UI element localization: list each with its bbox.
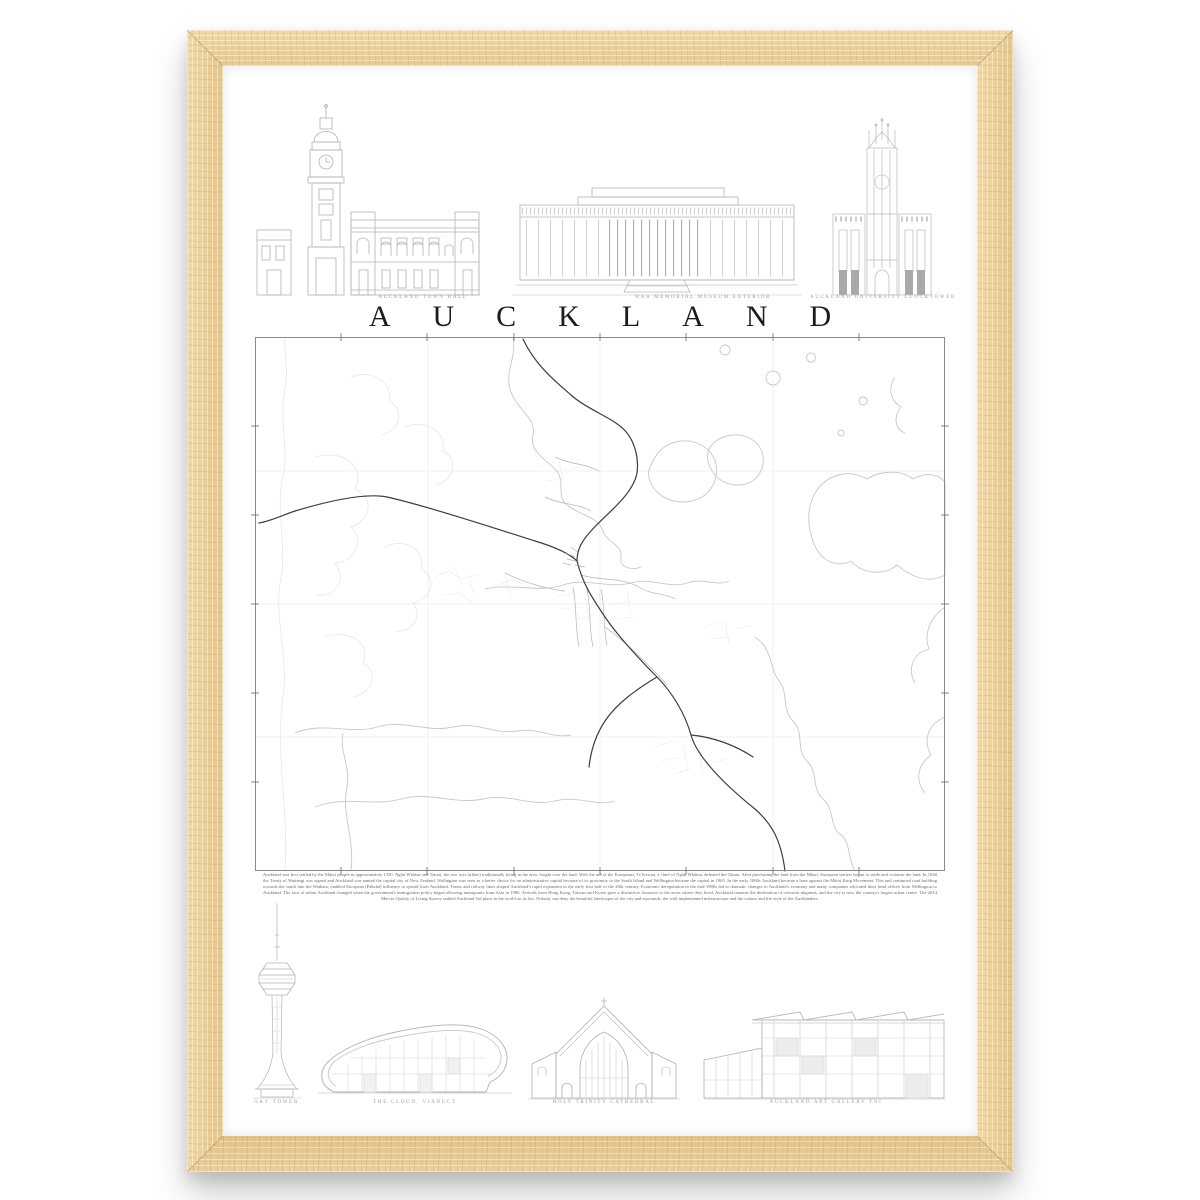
caption-holy-trinity-cathedral: HOLY TRINITY CATHEDRAL [528, 1100, 680, 1105]
auckland-town-hall-drawing [255, 102, 480, 296]
sky-tower-drawing [252, 903, 302, 1099]
frame-top-bar [187, 30, 1013, 66]
auckland-art-gallery-drawing [704, 998, 946, 1100]
auckland-city-map [255, 337, 945, 871]
caption-sky-tower: SKY TOWER [231, 1100, 323, 1105]
wooden-picture-frame: AUCKLAND TOWN HALL WAR MEMORIAL [187, 30, 1013, 1172]
auckland-architecture-poster: AUCKLAND TOWN HALL WAR MEMORIAL [223, 66, 977, 1136]
war-memorial-museum-drawing [512, 188, 802, 296]
holy-trinity-cathedral-drawing [528, 998, 680, 1100]
the-cloud-drawing [318, 1012, 512, 1098]
caption-auckland-art-gallery: AUCKLAND ART GALLERY TOI [750, 1100, 902, 1105]
frame-bottom-bar [187, 1136, 1013, 1172]
history-description: Auckland was first settled by the Māori … [263, 872, 937, 902]
caption-the-cloud: THE CLOUD, VIADUCT [340, 1100, 490, 1105]
frame-left-bar [187, 30, 223, 1172]
poster-title: AUCKLAND [223, 300, 977, 334]
frame-right-bar [977, 30, 1013, 1172]
university-clocktower-drawing [833, 118, 932, 296]
